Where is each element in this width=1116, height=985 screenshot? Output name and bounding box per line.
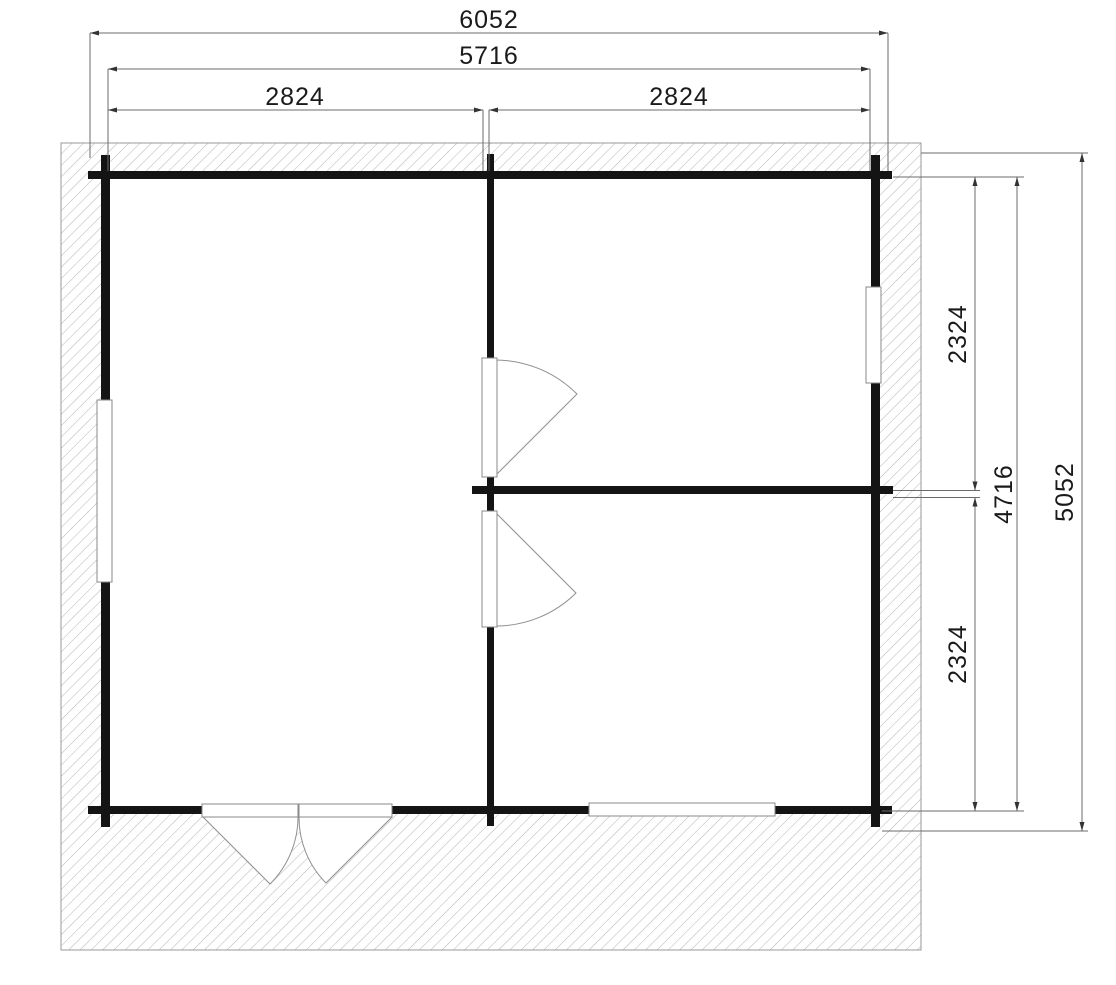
arrow <box>973 482 978 491</box>
window-right-wall <box>866 287 881 383</box>
dim-label-room-bottom-right-depth: 2324 <box>944 624 972 684</box>
partition-wall-vertical-upper-segment <box>487 154 494 358</box>
arrow <box>861 108 870 113</box>
arrow <box>1015 177 1020 186</box>
interior-door-bottom-swing-arc <box>495 512 576 626</box>
interior-door-top-leaf <box>482 358 497 477</box>
hatch-band-bottom <box>61 814 921 950</box>
arrow <box>973 498 978 507</box>
dim-label-overall-width: 6052 <box>459 6 519 34</box>
hatch-band-left <box>61 171 101 814</box>
door-frames <box>202 358 497 817</box>
arrow <box>879 31 888 36</box>
arrow <box>973 802 978 811</box>
arrow <box>108 108 117 113</box>
interior-door-bottom-leaf <box>482 511 497 627</box>
entrance-door-right-leaf <box>299 804 392 817</box>
partition-wall-vertical-lower-segment <box>487 627 494 826</box>
arrow <box>474 108 483 113</box>
dim-label-outer-wall-depth: 4716 <box>990 464 1018 524</box>
floor-plan-drawing: 6052 5716 2824 2824 2324 <box>0 0 1116 985</box>
dim-label-room-left-width: 2824 <box>265 83 325 111</box>
exterior-wall-right-upper-segment <box>871 155 880 287</box>
exterior-wall-right-lower-segment <box>871 383 880 827</box>
dim-label-room-top-right-depth: 2324 <box>944 304 972 364</box>
arrow <box>973 177 978 186</box>
arrow <box>90 31 99 36</box>
entrance-door-left-leaf <box>202 804 298 817</box>
dim-label-outer-wall-width: 5716 <box>459 42 519 70</box>
arrow <box>108 67 117 72</box>
window-left-wall <box>97 400 112 582</box>
arrow <box>489 108 498 113</box>
partition-wall-horizontal <box>472 486 893 494</box>
arrow <box>1015 802 1020 811</box>
walls <box>88 154 893 827</box>
arrow <box>861 67 870 72</box>
dim-label-overall-depth: 5052 <box>1051 462 1079 522</box>
exterior-wall-left-lower-segment <box>101 582 110 827</box>
arrow <box>1080 822 1085 831</box>
dim-label-room-right-width: 2824 <box>649 83 709 111</box>
exterior-wall-left-upper-segment <box>101 155 110 400</box>
interior-door-top-swing-arc <box>495 360 577 476</box>
arrow <box>1080 153 1085 162</box>
floor-plan-canvas: 6052 5716 2824 2824 2324 <box>0 0 1116 985</box>
window-bottom-wall <box>589 803 775 816</box>
